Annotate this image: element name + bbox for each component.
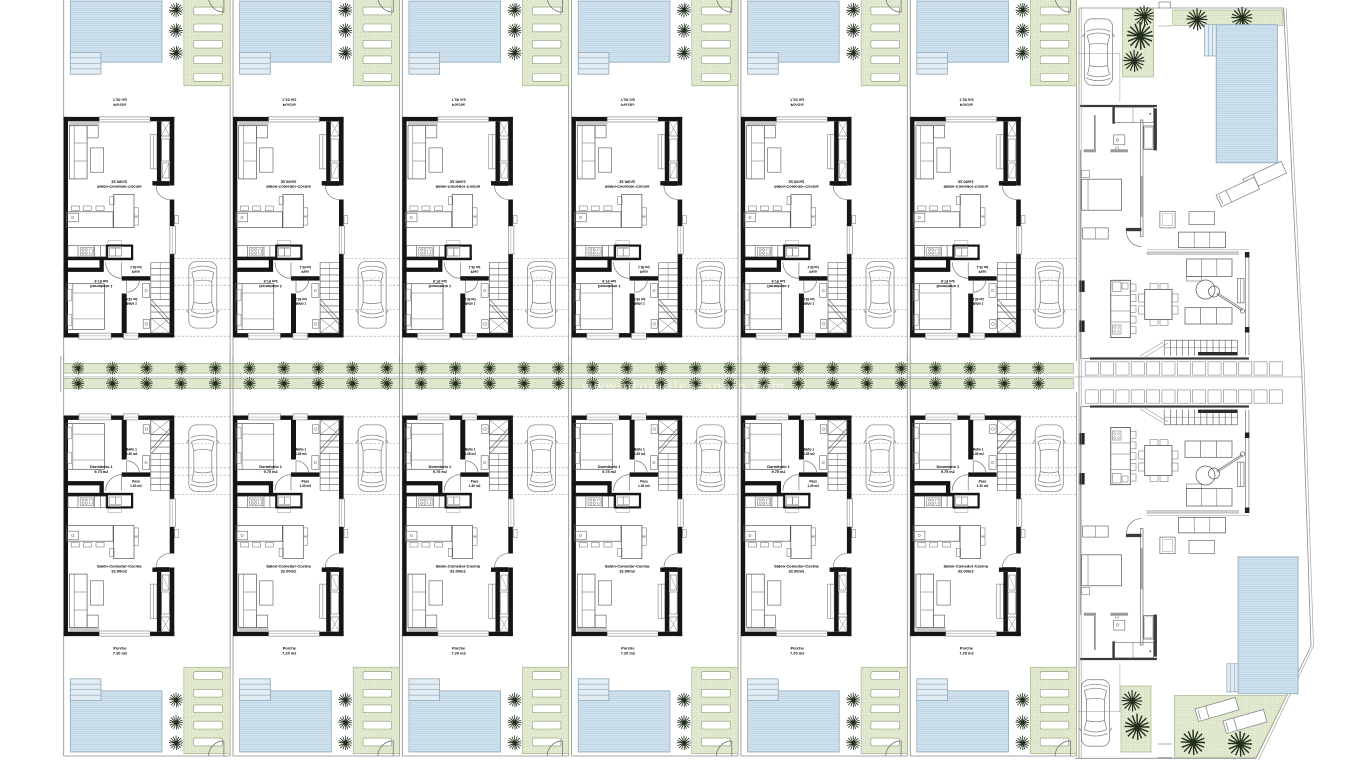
svg-text:www.proquiles-spain.com: www.proquiles-spain.com <box>581 379 786 394</box>
